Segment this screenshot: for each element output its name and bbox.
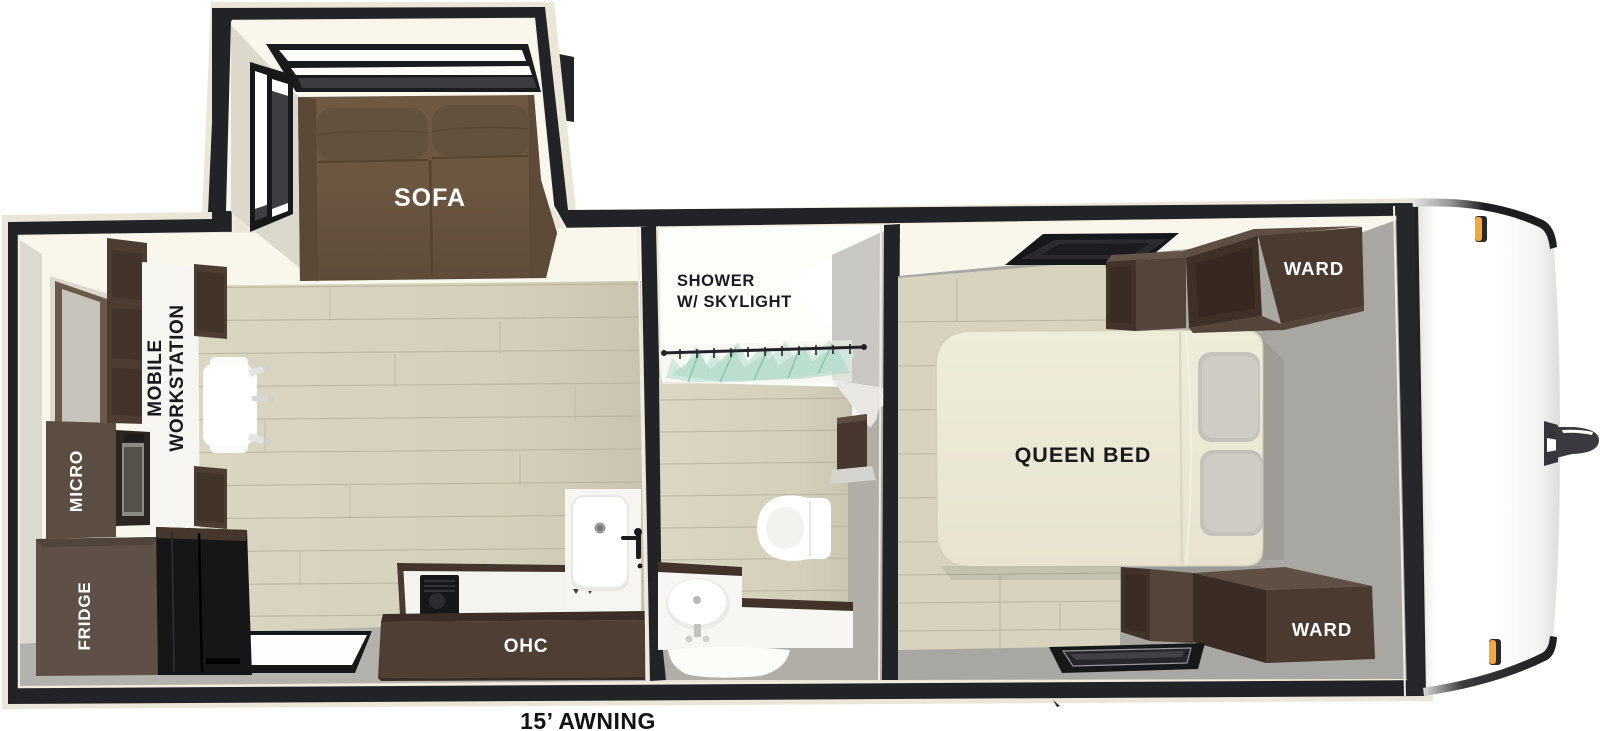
svg-text:MICRO: MICRO bbox=[66, 450, 86, 512]
svg-text:FRIDGE: FRIDGE bbox=[75, 581, 94, 650]
svg-text:SHOWER: SHOWER bbox=[677, 272, 755, 290]
svg-text:SOFA: SOFA bbox=[394, 184, 466, 212]
svg-text:QUEEN BED: QUEEN BED bbox=[1015, 443, 1152, 467]
svg-text:WARD: WARD bbox=[1292, 619, 1353, 640]
svg-text:MOBILE: MOBILE bbox=[145, 339, 166, 417]
svg-text:15’ AWNING: 15’ AWNING bbox=[520, 708, 656, 731]
svg-text:W/ SKYLIGHT: W/ SKYLIGHT bbox=[677, 293, 792, 311]
svg-text:WARD: WARD bbox=[1284, 258, 1345, 279]
svg-text:WORKSTATION: WORKSTATION bbox=[167, 304, 188, 451]
svg-text:OHC: OHC bbox=[504, 636, 549, 657]
